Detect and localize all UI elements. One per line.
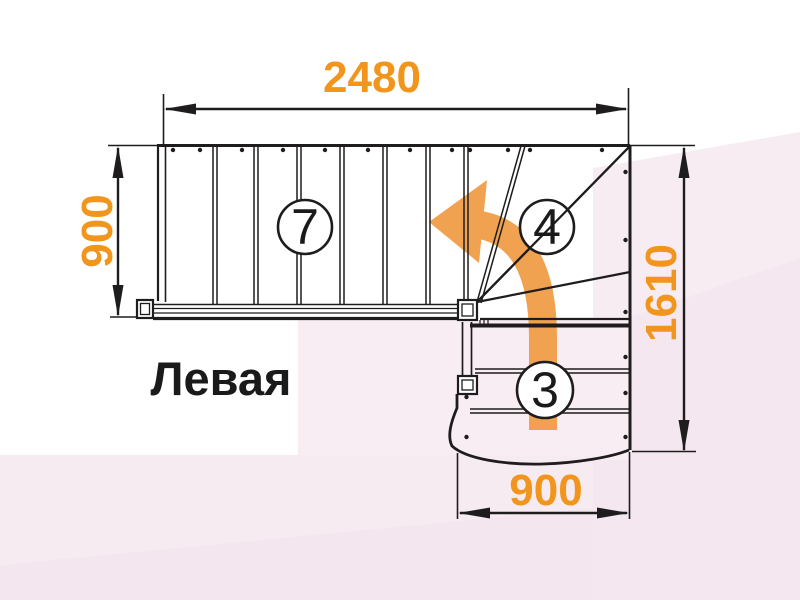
- dimension-top-label: 2480: [323, 53, 421, 102]
- newel-post-left: [137, 300, 153, 318]
- upper-flight-treads: [213, 146, 468, 304]
- newel-post-mid: [458, 376, 477, 394]
- dimension-left-label: 900: [73, 194, 122, 267]
- step-count-upper-label: 7: [291, 199, 319, 255]
- dimension-bottom-label: 900: [509, 466, 582, 515]
- step-count-lower-label: 3: [531, 362, 559, 418]
- direction-arrow-head: [429, 180, 487, 263]
- stair-plan-canvas: 2480 900 1610 900 7 4 3 Левая: [0, 0, 800, 600]
- stair-plan-drawing: 2480 900 1610 900 7 4 3 Левая: [0, 0, 800, 600]
- orientation-label: Левая: [151, 352, 292, 405]
- dimension-right-label: 1610: [637, 244, 686, 342]
- step-count-winder-label: 4: [533, 199, 561, 255]
- newel-post-corner: [458, 300, 488, 324]
- stringer-strip: [153, 305, 458, 319]
